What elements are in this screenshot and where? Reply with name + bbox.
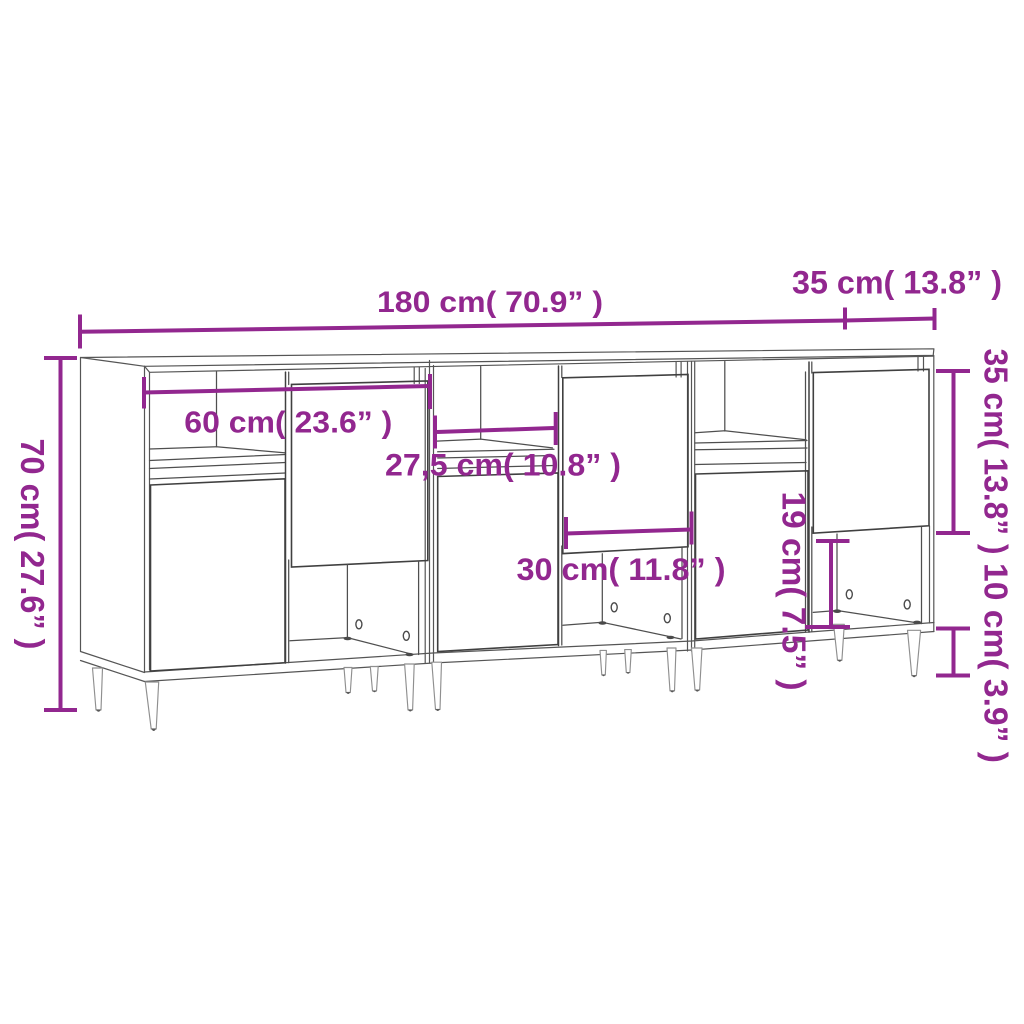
svg-text:70 cm( 27.6” ): 70 cm( 27.6” ) bbox=[14, 439, 51, 650]
svg-text:35 cm( 13.8” ): 35 cm( 13.8” ) bbox=[792, 265, 1002, 301]
svg-text:30 cm( 11.8” ): 30 cm( 11.8” ) bbox=[517, 551, 726, 587]
svg-text:180 cm( 70.9” ): 180 cm( 70.9” ) bbox=[377, 286, 603, 319]
svg-text:19 cm( 7.5” ): 19 cm( 7.5” ) bbox=[776, 492, 813, 691]
svg-text:60 cm( 23.6” ): 60 cm( 23.6” ) bbox=[184, 406, 392, 440]
svg-text:27,5 cm( 10.8” ): 27,5 cm( 10.8” ) bbox=[385, 447, 621, 483]
svg-text:10 cm( 3.9” ): 10 cm( 3.9” ) bbox=[978, 563, 1015, 763]
svg-text:35 cm( 13.8” ): 35 cm( 13.8” ) bbox=[978, 349, 1015, 555]
